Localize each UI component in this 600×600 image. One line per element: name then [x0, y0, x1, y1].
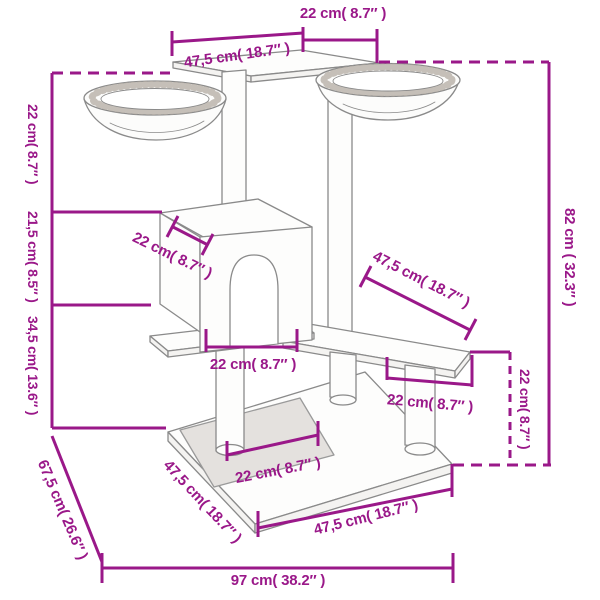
- cat-tree-line-drawing: [0, 0, 600, 600]
- dim-label-top-platform-width: 22 cm( 8.7″ ): [291, 4, 395, 24]
- dim-label-total-height: 82 cm ( 32.3″ ): [556, 170, 582, 345]
- dim-label-left-mid-section: 21,5 cm( 8.5″ ): [20, 206, 46, 308]
- dim-label-left-lower-section: 34,5 cm( 13.6″ ): [20, 300, 46, 432]
- dim-label-total-width: 97 cm( 38.2″ ): [216, 571, 340, 591]
- mat-support-post: [330, 352, 356, 405]
- left-hammock-bowl: [84, 81, 226, 140]
- dimension-diagram: 22 cm( 8.7″ ) 47,5 cm( 18.7″ ) 22 cm( 8.…: [0, 0, 600, 600]
- dim-label-house-width: 22 cm( 8.7″ ): [201, 355, 305, 375]
- dim-label-left-top-section: 22 cm( 8.7″ ): [20, 78, 46, 210]
- cat-house: [160, 199, 312, 352]
- house-door-arch: [230, 255, 278, 349]
- left-post: [222, 70, 246, 209]
- dim-label-platform-to-base: 22 cm( 8.7″ ): [512, 350, 538, 468]
